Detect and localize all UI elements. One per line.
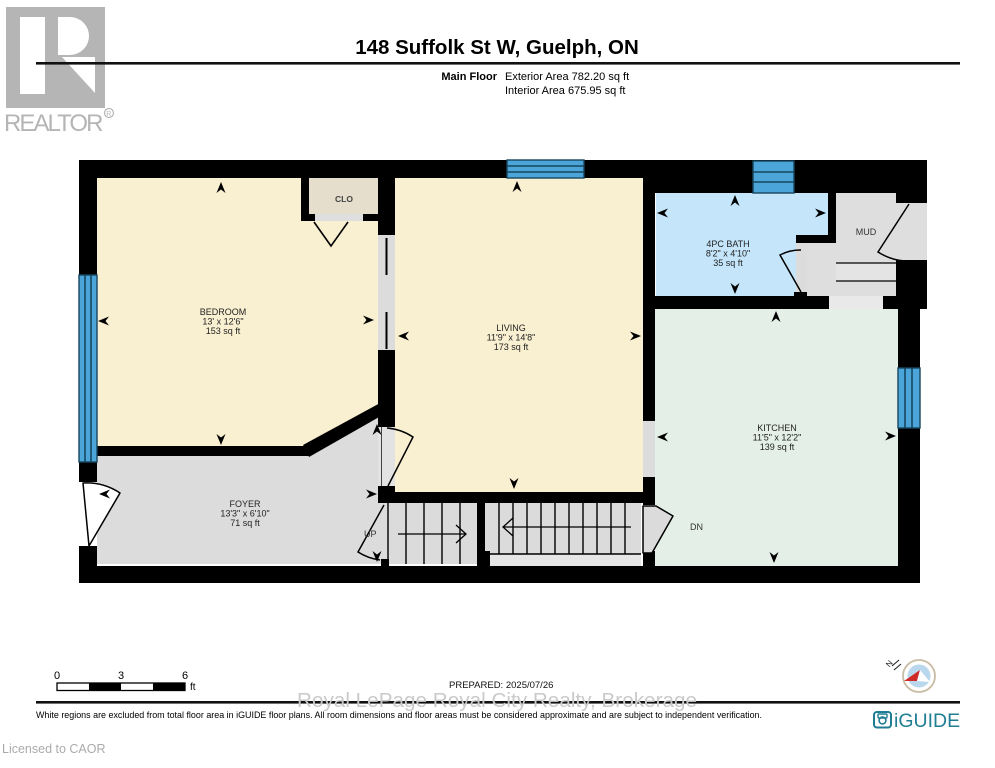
svg-text:173 sq ft: 173 sq ft: [494, 342, 529, 352]
svg-text:71 sq ft: 71 sq ft: [230, 518, 260, 528]
svg-text:3: 3: [118, 670, 124, 682]
svg-text:8'2" x 4'10": 8'2" x 4'10": [706, 249, 750, 259]
svg-text:FOYER: FOYER: [229, 499, 261, 509]
svg-text:13'3" x 6'10": 13'3" x 6'10": [220, 509, 269, 519]
svg-text:Licensed to CAOR: Licensed to CAOR: [2, 742, 106, 756]
svg-text:6: 6: [182, 670, 188, 682]
svg-text:11'5" x 12'2": 11'5" x 12'2": [753, 433, 802, 443]
svg-text:BEDROOM: BEDROOM: [200, 307, 247, 317]
svg-text:ft: ft: [190, 682, 196, 693]
svg-text:CLO: CLO: [335, 194, 353, 204]
svg-text:Main Floor: Main Floor: [441, 71, 497, 83]
svg-text:iGUIDE: iGUIDE: [894, 710, 960, 732]
svg-text:REALTOR: REALTOR: [4, 110, 104, 137]
svg-text:153 sq ft: 153 sq ft: [206, 326, 241, 336]
svg-text:DN: DN: [690, 522, 703, 532]
svg-text:35 sq ft: 35 sq ft: [713, 258, 743, 268]
svg-text:Exterior Area 782.20 sq ft: Exterior Area 782.20 sq ft: [505, 71, 629, 83]
svg-text:0: 0: [54, 670, 60, 682]
svg-text:White regions are excluded fro: White regions are excluded from total fl…: [36, 710, 762, 720]
svg-text:LIVING: LIVING: [496, 323, 526, 333]
svg-text:11'9" x 14'8": 11'9" x 14'8": [487, 333, 536, 343]
svg-text:R: R: [106, 111, 111, 118]
svg-text:Interior Area 675.95 sq ft: Interior Area 675.95 sq ft: [505, 85, 625, 97]
svg-text:UP: UP: [364, 529, 377, 539]
svg-text:148 Suffolk St W, Guelph, ON: 148 Suffolk St W, Guelph, ON: [355, 36, 639, 59]
svg-text:4PC BATH: 4PC BATH: [706, 239, 749, 249]
svg-text:KITCHEN: KITCHEN: [757, 423, 797, 433]
svg-text:MUD: MUD: [856, 227, 877, 237]
svg-text:13' x 12'6": 13' x 12'6": [202, 317, 243, 327]
svg-text:139 sq ft: 139 sq ft: [760, 442, 795, 452]
svg-text:Royal LePage Royal City Realty: Royal LePage Royal City Realty, Brokerag…: [297, 690, 697, 712]
